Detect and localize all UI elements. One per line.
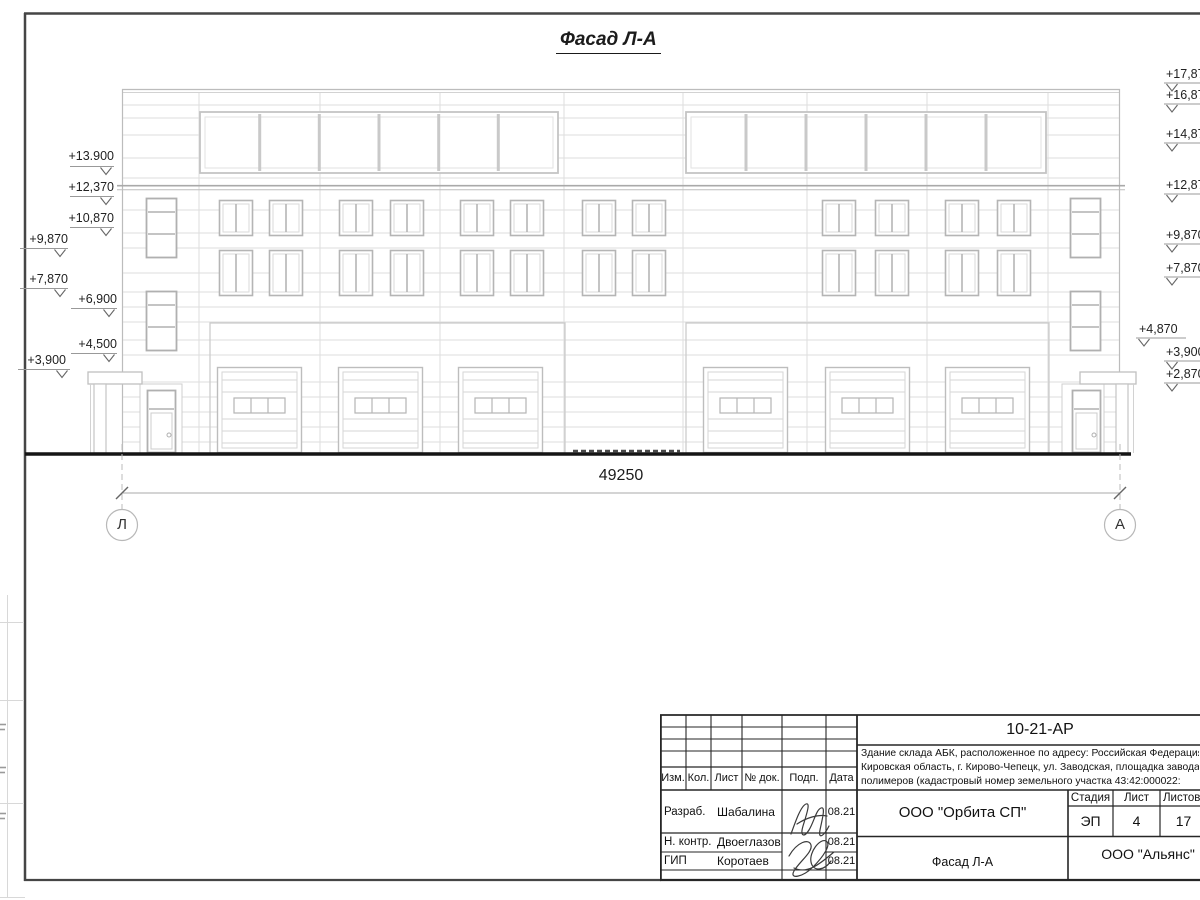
garage-doors	[218, 368, 1030, 453]
elevation-label: +9,870	[1166, 229, 1200, 242]
elevation-label: +3,900	[6, 354, 66, 367]
titleblock-name: Коротаев	[717, 854, 769, 868]
drawing-sheet: Фасад Л-А +13.900 +12,370 +10,870 +9,870…	[0, 0, 1200, 900]
titleblock-col-kol: Кол.	[686, 772, 711, 784]
elevation-label: +4,870	[1139, 323, 1178, 336]
dimension-label: 49250	[571, 468, 671, 485]
titleblock-col-list: Лист	[711, 772, 742, 784]
elevation-label: +12,870	[1166, 179, 1200, 192]
titleblock-description-line: Здание склада АБК, расположенное по адре…	[861, 748, 1199, 759]
titleblock-description-line: Кировская область, г. Кирово-Чепецк, ул.…	[861, 762, 1199, 773]
titleblock-sheet-number: 4	[1113, 813, 1160, 829]
axis-bubble-right: А	[1109, 517, 1131, 533]
elevation-label: +17,870	[1166, 68, 1200, 81]
titleblock-description-line: полимеров (кадастровый номер земельного …	[861, 776, 1199, 787]
titleblock-doc-number: 10-21-АР	[940, 721, 1140, 739]
upper-floor-windows	[220, 201, 1031, 236]
entrance-right	[1062, 372, 1136, 453]
elevation-label: +10,870	[54, 212, 114, 225]
elevation-label: +3,900	[1166, 346, 1200, 359]
titleblock-role: ГИП	[664, 855, 687, 867]
elevation-label: +7,870	[8, 273, 68, 286]
titleblock-name: Двоеглазов	[717, 835, 781, 849]
elevation-label: +2,870	[1166, 368, 1200, 381]
titleblock-company: ООО "Орбита СП"	[857, 804, 1068, 821]
elevation-label: +9,870	[8, 233, 68, 246]
titleblock-stage-value: ЭП	[1068, 813, 1113, 829]
titleblock-date: 08.21	[826, 855, 857, 867]
titleblock-role: Разраб.	[664, 806, 705, 818]
clerestory-windows	[200, 112, 1046, 173]
axis-bubble-left: Л	[111, 517, 133, 533]
titleblock-col-data: Дата	[826, 772, 857, 784]
elevation-label: +12,370	[54, 181, 114, 194]
titleblock-date: 08.21	[826, 806, 857, 818]
titleblock-sheet-label: Лист	[1113, 792, 1160, 804]
titleblock-role: Н. контр.	[664, 836, 711, 848]
titleblock-stage-label: Стадия	[1068, 792, 1113, 804]
drawing-title: Фасад Л-А	[556, 30, 661, 54]
elevation-label: +13.900	[54, 150, 114, 163]
titleblock-col-izm: Изм.	[660, 772, 686, 784]
titleblock-contractor: ООО "Альянс"	[1068, 846, 1200, 862]
building-facade	[88, 89, 1136, 454]
titleblock-col-ndok: № док.	[742, 772, 782, 784]
elevation-label: +6,900	[57, 293, 117, 306]
elevation-label: +7,870	[1166, 262, 1200, 275]
elevation-label: +4,500	[57, 338, 117, 351]
elevation-label: +16,870	[1166, 89, 1200, 102]
titleblock-drawing-name: Фасад Л-А	[857, 855, 1068, 869]
titleblock-sheets-total: 17	[1160, 813, 1200, 829]
titleblock-col-podp: Подп.	[782, 772, 826, 784]
left-edge-fragments	[0, 595, 25, 898]
elevation-label: +14,870	[1166, 128, 1200, 141]
titleblock-sheets-label: Листов	[1163, 792, 1200, 804]
titleblock-date: 08.21	[826, 836, 857, 848]
axis-bubbles	[107, 510, 1136, 541]
titleblock-name: Шабалина	[717, 805, 775, 819]
